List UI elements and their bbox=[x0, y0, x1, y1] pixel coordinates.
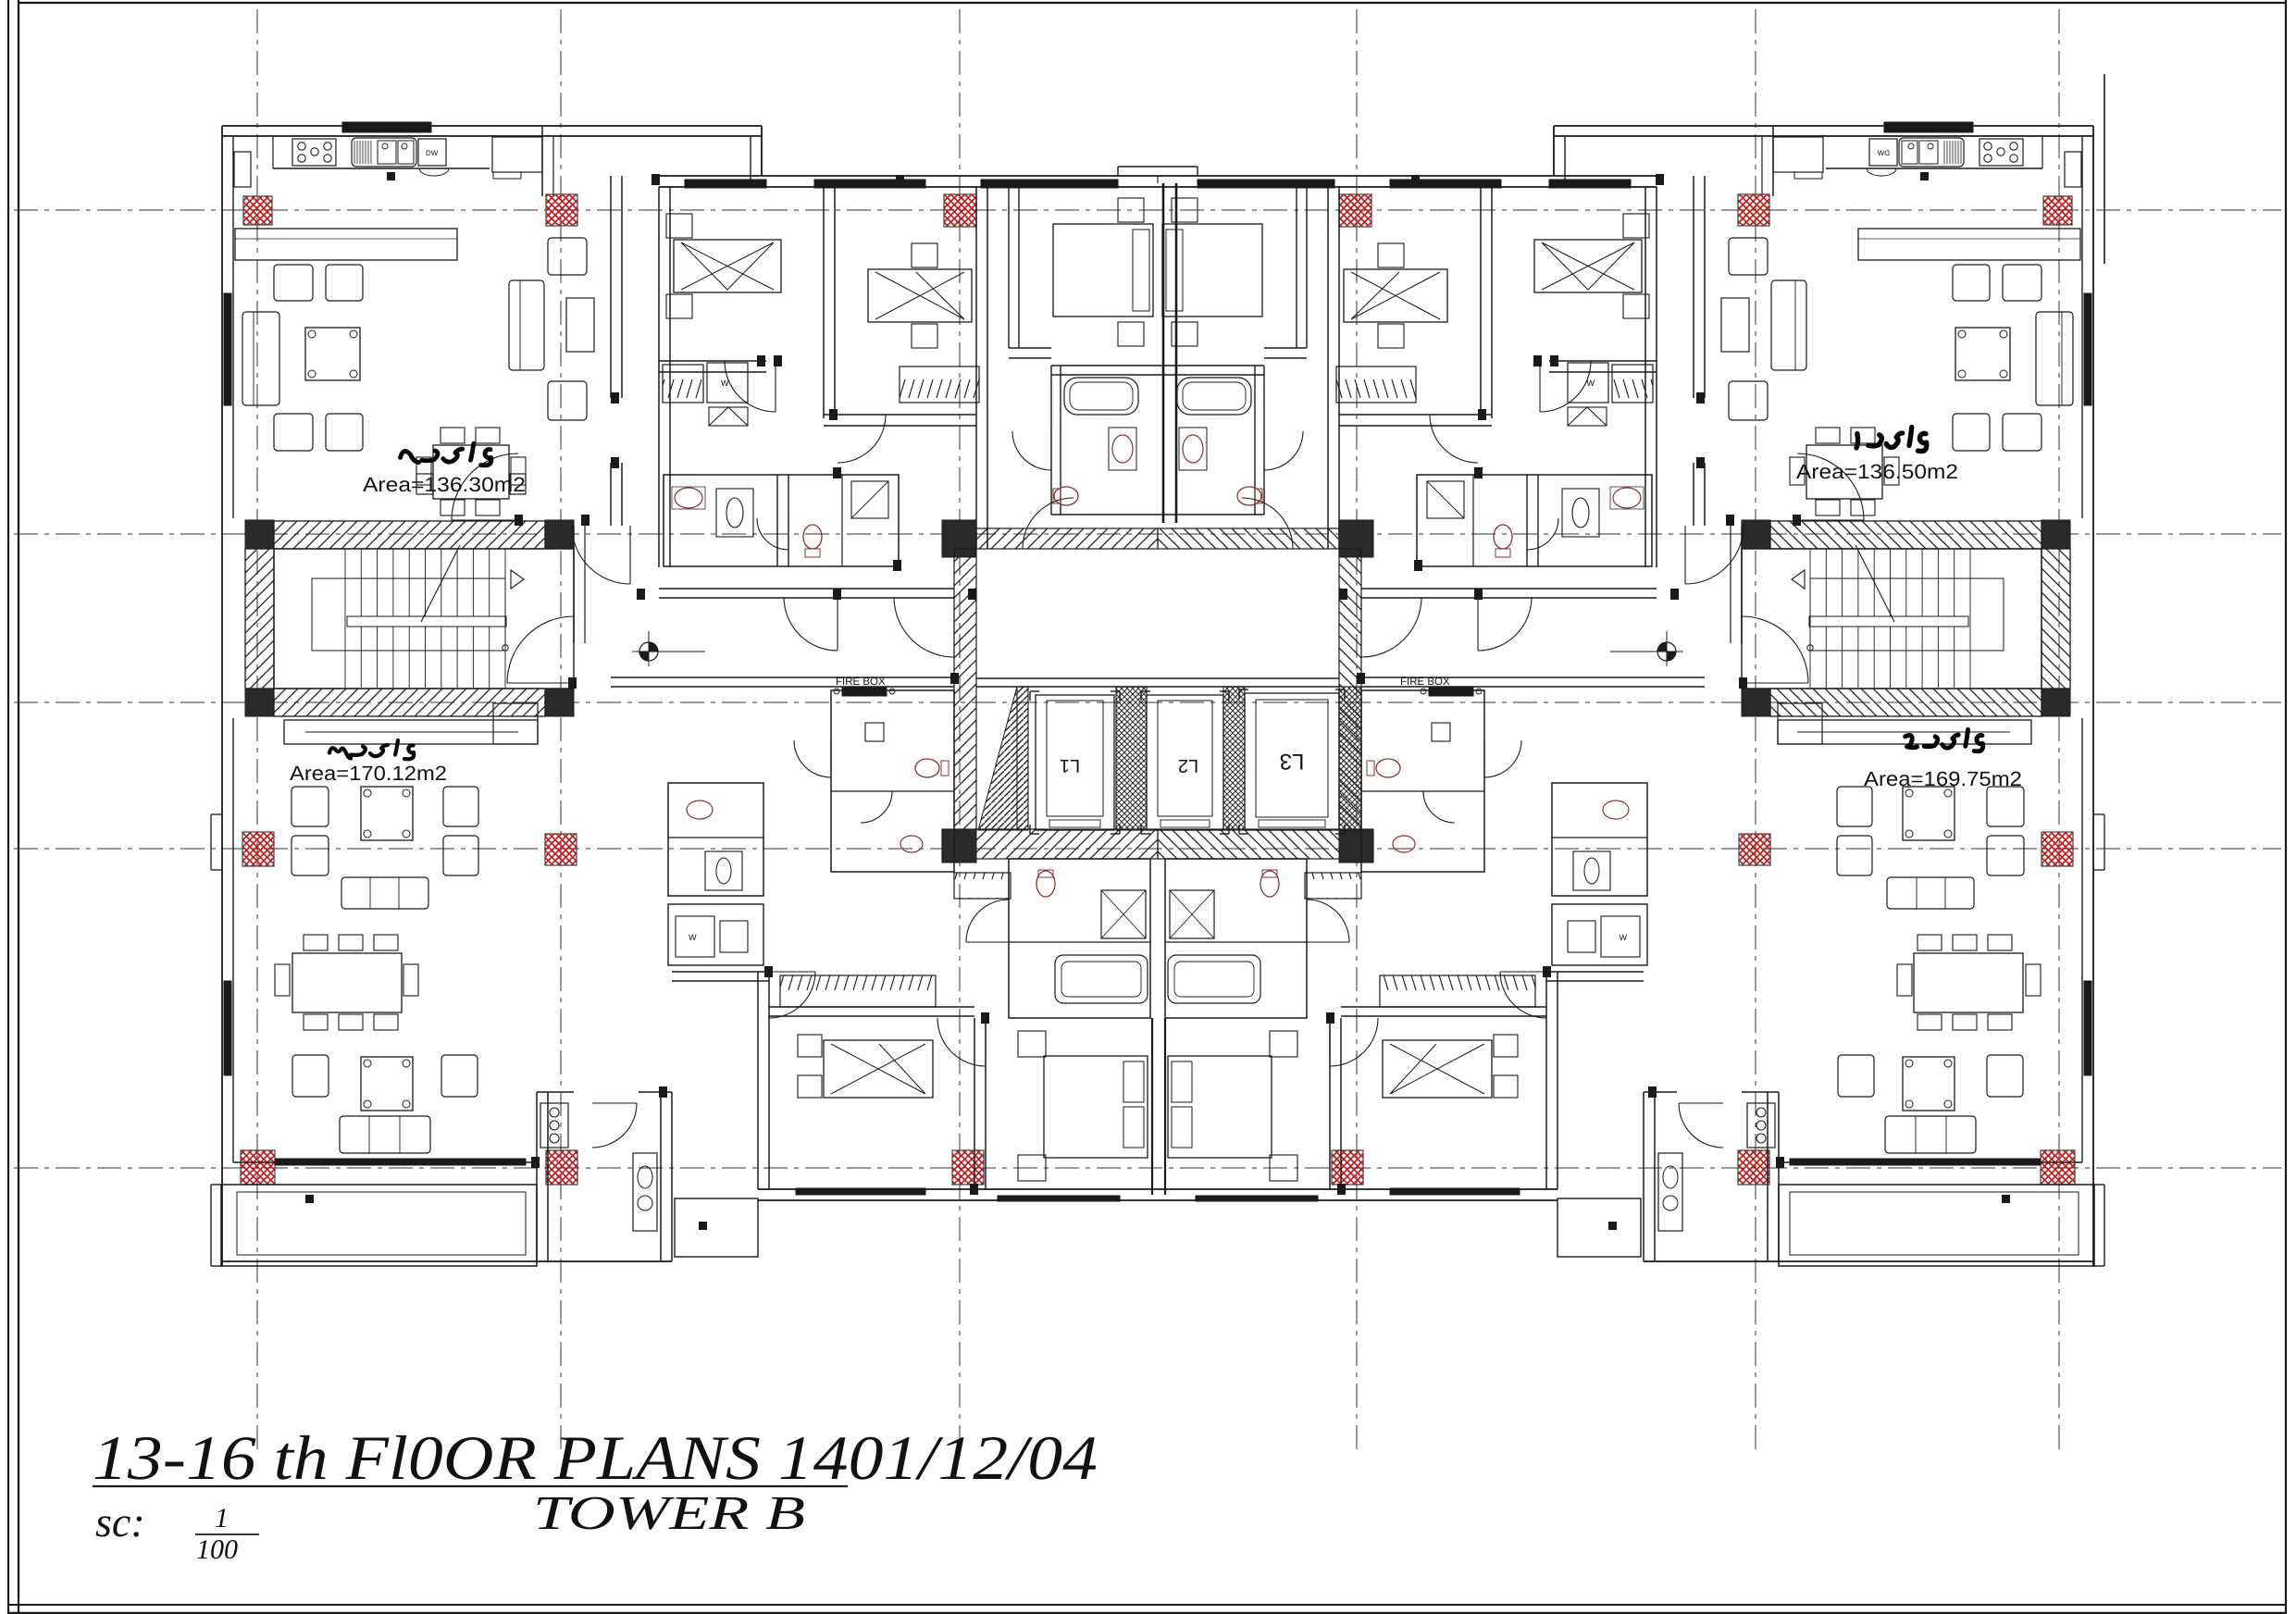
svg-text:DW: DW bbox=[426, 149, 439, 157]
svg-text:Area=136.30m2: Area=136.30m2 bbox=[363, 473, 526, 496]
svg-text:1: 1 bbox=[215, 1503, 229, 1533]
svg-text:13-16 th Fl0OR PLANS 1401/: 13-16 th Fl0OR PLANS 1401/12/04 bbox=[93, 1422, 1098, 1493]
svg-text:Area=136.50m2: Area=136.50m2 bbox=[1796, 460, 1958, 483]
svg-text:FIRE BOX: FIRE BOX bbox=[1400, 677, 1450, 688]
svg-text:L2: L2 bbox=[1178, 755, 1198, 776]
svg-text:Area=169.75m2: Area=169.75m2 bbox=[1864, 767, 2022, 790]
svg-text:W: W bbox=[689, 933, 697, 942]
svg-text:FIRE BOX: FIRE BOX bbox=[836, 677, 886, 688]
svg-text:TOWER B: TOWER B bbox=[533, 1487, 805, 1540]
svg-text:100: 100 bbox=[196, 1534, 238, 1565]
svg-text:L1: L1 bbox=[1060, 755, 1080, 776]
svg-text:L3: L3 bbox=[1280, 749, 1305, 774]
svg-text:sc:: sc: bbox=[95, 1498, 145, 1546]
svg-text:Area=170.12m2: Area=170.12m2 bbox=[290, 762, 447, 785]
